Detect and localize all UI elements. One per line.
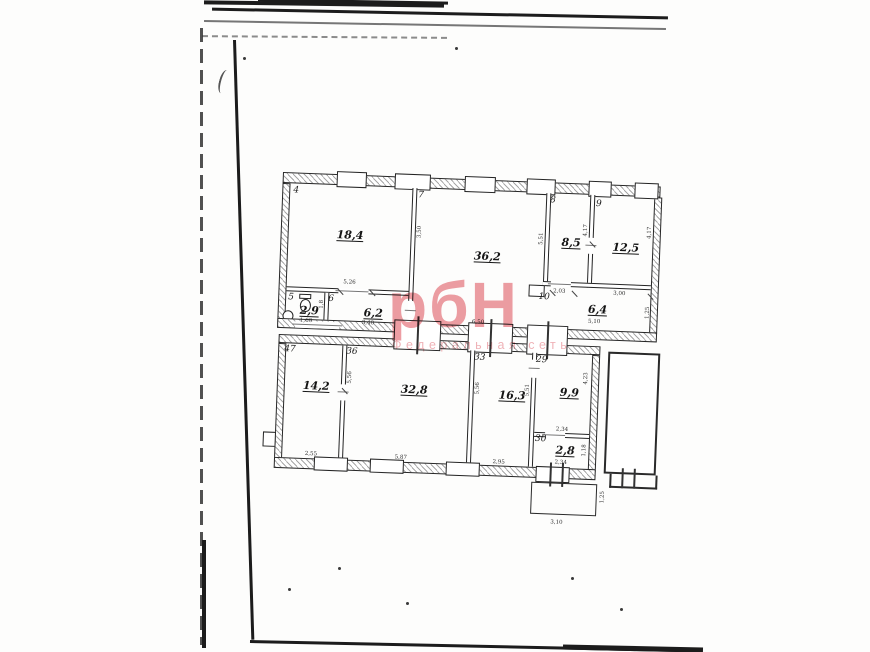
room-area-label: 16,3 bbox=[498, 388, 525, 402]
dimension-label: 4,23 bbox=[582, 372, 589, 385]
dimension-label: 3,40 bbox=[362, 319, 375, 326]
wall bbox=[649, 197, 662, 334]
room-number: 7 bbox=[418, 190, 424, 200]
room-area-label: 12,5 bbox=[612, 241, 639, 255]
wall bbox=[589, 195, 596, 238]
room-number: 29 bbox=[536, 355, 548, 365]
room-area-label: 6,2 bbox=[363, 306, 383, 320]
scan-top-edge-line bbox=[212, 8, 668, 19]
room-area-label: 8,5 bbox=[561, 236, 581, 250]
room-area-label: 2,9 bbox=[299, 304, 319, 318]
dimension-label: 4,17 bbox=[646, 227, 653, 240]
room-area-label: 18,4 bbox=[336, 228, 363, 242]
window-opening bbox=[370, 459, 405, 474]
wall bbox=[588, 355, 600, 472]
scan-curve-mark bbox=[216, 69, 234, 95]
window-opening bbox=[314, 456, 349, 471]
door-opening bbox=[551, 281, 571, 287]
room-number: 33 bbox=[474, 352, 486, 362]
watermark-logo: рбН bbox=[388, 268, 519, 342]
window-opening bbox=[526, 178, 556, 195]
balcony-door-opening bbox=[535, 466, 570, 483]
room-number: 8 bbox=[550, 195, 556, 205]
scan-speck bbox=[406, 602, 409, 605]
scan-speck bbox=[620, 608, 623, 611]
dimension-label: 5,51 bbox=[538, 232, 545, 245]
room-area-label: 14,2 bbox=[303, 379, 330, 393]
room-area-label: 32,8 bbox=[401, 383, 428, 397]
room-number: 36 bbox=[346, 347, 358, 357]
scan-left-edge bbox=[202, 540, 206, 648]
dimension-label: 5,51 bbox=[524, 384, 531, 397]
door-opening bbox=[545, 432, 565, 438]
room-area-label: 36,2 bbox=[474, 249, 501, 263]
dimension-label: 5,26 bbox=[343, 279, 356, 286]
wall bbox=[338, 400, 345, 459]
dim-tick bbox=[571, 291, 577, 298]
scan-speck bbox=[338, 567, 341, 570]
wall bbox=[565, 433, 589, 439]
dimension-label: 5,87 bbox=[395, 454, 408, 461]
window-opening bbox=[336, 171, 367, 188]
dimension-label: 2,03 bbox=[553, 288, 566, 295]
dimension-label: 5,56 bbox=[346, 371, 353, 384]
room-number: 6 bbox=[328, 294, 334, 304]
room-number: 30 bbox=[535, 434, 547, 444]
wall-notch bbox=[262, 431, 276, 446]
room-number: 9 bbox=[596, 199, 602, 209]
dimension-label: 2,34 bbox=[554, 459, 567, 466]
room-number: 10 bbox=[538, 292, 550, 302]
scan-dashed-line bbox=[202, 35, 447, 39]
dimension-label: 1,25 bbox=[599, 491, 606, 504]
stair-shaft bbox=[604, 352, 661, 476]
dimension-label: 3,10 bbox=[550, 519, 563, 526]
dimension-label: 2,55 bbox=[305, 450, 318, 457]
wall bbox=[466, 350, 475, 464]
room-area-label: 6,4 bbox=[588, 303, 608, 317]
dimension-label: 5,10 bbox=[588, 318, 601, 325]
dimension-label: 1,18 bbox=[581, 444, 588, 457]
dimension-label: 2,34 bbox=[556, 426, 569, 433]
dimension-label: 4,17 bbox=[582, 224, 589, 237]
scan-speck bbox=[455, 47, 458, 50]
wall bbox=[571, 282, 651, 290]
wall bbox=[277, 183, 290, 324]
window-opening bbox=[464, 176, 496, 193]
window-opening bbox=[634, 183, 659, 200]
room-number: 4 bbox=[293, 185, 299, 195]
scan-speck bbox=[288, 588, 291, 591]
scan-top-edge-line bbox=[204, 20, 666, 30]
scan-frame-left bbox=[233, 40, 254, 640]
dimension-label: 3,00 bbox=[613, 290, 626, 297]
dimension-label: 3,50 bbox=[416, 226, 423, 239]
balcony bbox=[530, 482, 597, 517]
wall bbox=[274, 343, 286, 460]
dimension-label: 1,25 bbox=[644, 307, 651, 320]
scan-speck bbox=[571, 577, 574, 580]
dimension-label: 1,60 bbox=[300, 317, 313, 324]
room-number: 5 bbox=[288, 292, 294, 302]
room-area-label: 2,8 bbox=[555, 444, 575, 458]
window-opening bbox=[445, 461, 480, 476]
dimension-label: 1,8 bbox=[318, 300, 325, 309]
dimension-label: 5,56 bbox=[474, 382, 481, 395]
dimension-label: 2,95 bbox=[492, 459, 505, 466]
scan-speck bbox=[243, 57, 246, 60]
watermark-subtitle: Федеральная сеть bbox=[392, 338, 571, 352]
floor-plan: 4 7 8 9 5 6 10 47 36 33 29 30 18,4 36,2 … bbox=[269, 172, 678, 539]
scan-frame-bottom-dark bbox=[563, 645, 703, 652]
room-area-label: 9,9 bbox=[559, 386, 579, 400]
room-number: 47 bbox=[284, 344, 296, 354]
